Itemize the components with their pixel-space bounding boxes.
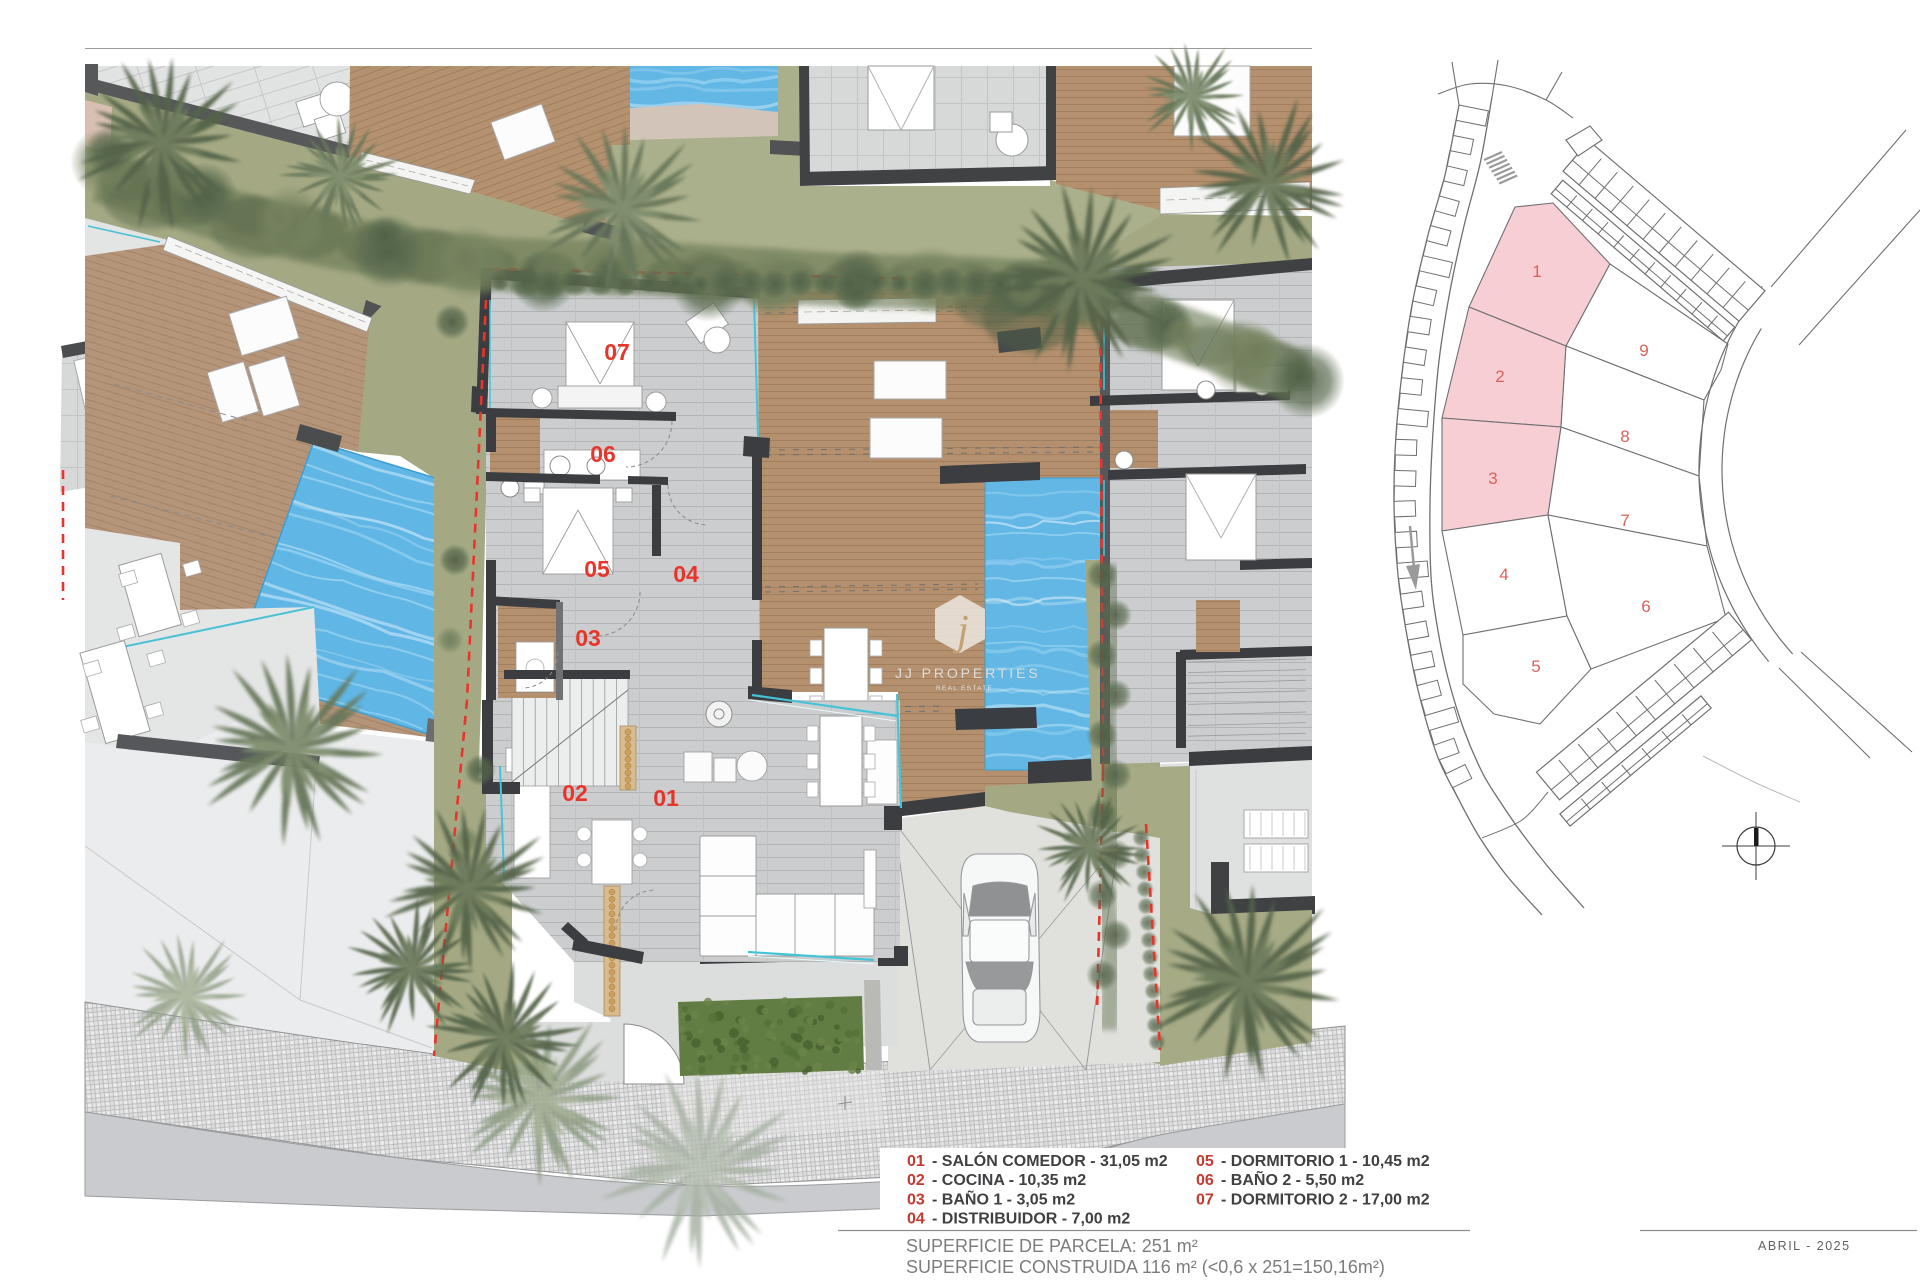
svg-text:- BAÑO 1 - 3,05 m2: - BAÑO 1 - 3,05 m2 — [932, 1188, 1075, 1208]
svg-text:3: 3 — [1488, 469, 1497, 488]
svg-text:01: 01 — [907, 1153, 925, 1170]
svg-text:7: 7 — [1620, 511, 1629, 530]
svg-text:SUPERFICIE CONSTRUIDA 116 m² (: SUPERFICIE CONSTRUIDA 116 m² (<0,6 x 251… — [906, 1257, 1385, 1277]
svg-text:04: 04 — [907, 1211, 925, 1228]
svg-text:06: 06 — [590, 441, 616, 467]
svg-text:06: 06 — [1196, 1172, 1214, 1189]
svg-text:05: 05 — [584, 556, 610, 582]
svg-text:ABRIL - 2025: ABRIL - 2025 — [1758, 1239, 1851, 1253]
svg-text:REAL ESTATE: REAL ESTATE — [936, 685, 993, 692]
svg-text:02: 02 — [562, 780, 588, 806]
svg-text:- BAÑO 2 - 5,50 m2: - BAÑO 2 - 5,50 m2 — [1221, 1169, 1364, 1189]
svg-text:9: 9 — [1639, 341, 1648, 360]
svg-text:4: 4 — [1499, 565, 1508, 584]
svg-text:03: 03 — [575, 625, 601, 651]
svg-text:2: 2 — [1495, 367, 1504, 386]
svg-text:01: 01 — [653, 785, 679, 811]
svg-text:JJ PROPERTIES: JJ PROPERTIES — [895, 665, 1041, 681]
svg-text:- COCINA - 10,35 m2: - COCINA - 10,35 m2 — [932, 1172, 1086, 1189]
svg-text:04: 04 — [673, 561, 699, 587]
svg-text:- DISTRIBUIDOR - 7,00 m2: - DISTRIBUIDOR - 7,00 m2 — [932, 1211, 1130, 1228]
svg-text:6: 6 — [1641, 597, 1650, 616]
svg-text:5: 5 — [1531, 657, 1540, 676]
svg-text:SUPERFICIE DE PARCELA: 251 m²: SUPERFICIE DE PARCELA: 251 m² — [906, 1236, 1198, 1256]
svg-text:03: 03 — [907, 1191, 925, 1208]
svg-text:- DORMITORIO 1 - 10,45 m2: - DORMITORIO 1 - 10,45 m2 — [1221, 1153, 1430, 1170]
svg-text:1: 1 — [1532, 262, 1541, 281]
svg-text:05: 05 — [1196, 1153, 1214, 1170]
svg-text:02: 02 — [907, 1172, 925, 1189]
svg-text:- SALÓN COMEDOR - 31,05 m2: - SALÓN COMEDOR - 31,05 m2 — [932, 1151, 1168, 1170]
svg-text:07: 07 — [1196, 1191, 1214, 1208]
svg-text:07: 07 — [604, 339, 630, 365]
svg-text:8: 8 — [1620, 427, 1629, 446]
svg-text:- DORMITORIO 2 - 17,00 m2: - DORMITORIO 2 - 17,00 m2 — [1221, 1191, 1430, 1208]
